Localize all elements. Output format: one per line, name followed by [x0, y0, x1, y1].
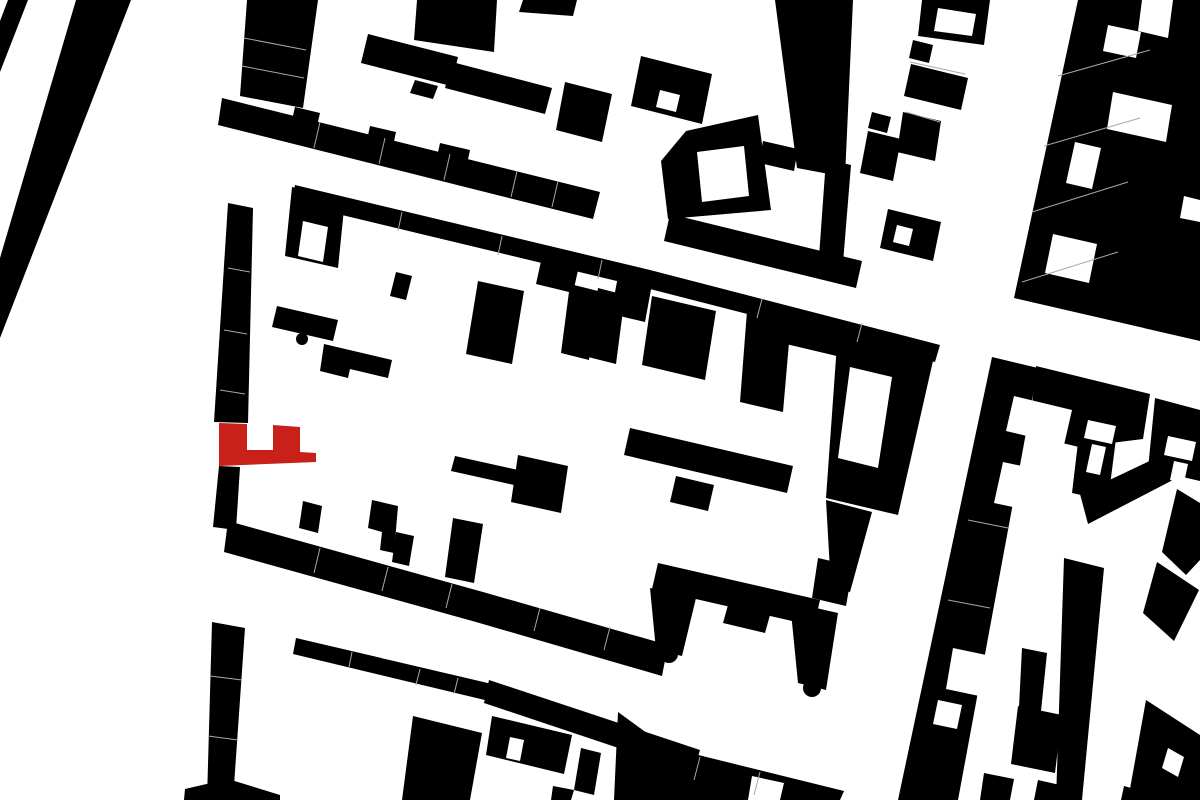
building-footprint: [642, 296, 716, 380]
highlighted-building: [219, 423, 316, 466]
building-footprint: [368, 500, 398, 553]
building-footprint: [574, 748, 601, 795]
building-footprint: [390, 272, 412, 300]
building-footprint: [0, 0, 28, 72]
building-footprint: [556, 82, 612, 142]
building-footprint: [410, 80, 438, 99]
building-footprint: [812, 558, 853, 606]
building-footprint: [670, 476, 714, 511]
building-footprint: [904, 64, 968, 110]
building-footprint: [819, 159, 851, 263]
courtyard: [697, 146, 749, 202]
building-footprint: [624, 428, 793, 493]
building-footprint: [299, 501, 322, 533]
building-footprint: [224, 521, 668, 676]
building-footprint: [214, 203, 253, 423]
building-footprint: [790, 602, 838, 690]
building-footprint: [868, 112, 891, 133]
building-footprint: [320, 344, 392, 378]
building-apse: [296, 333, 308, 345]
map-canvas: [0, 0, 1200, 800]
building-footprint: [1162, 489, 1200, 575]
building-footprint: [451, 456, 518, 485]
building-footprint: [980, 773, 1014, 800]
courtyard: [933, 700, 962, 729]
courtyard: [298, 221, 328, 262]
building-footprint: [740, 298, 792, 412]
building-footprint: [1128, 700, 1200, 800]
building-footprint: [218, 98, 600, 219]
building-footprint: [445, 518, 483, 583]
building-footprint: [213, 466, 240, 530]
building-footprint: [614, 712, 844, 800]
building-footprint: [1034, 780, 1060, 800]
building-footprint: [897, 112, 941, 161]
building-footprint: [207, 622, 245, 800]
building-footprint: [402, 716, 482, 800]
figure-ground-map: [0, 0, 1200, 800]
building-footprint: [1143, 562, 1199, 641]
building-footprint: [0, 0, 131, 338]
building-footprint: [240, 0, 318, 108]
building-footprint: [631, 56, 712, 124]
building-footprint: [551, 786, 574, 800]
building-apse: [803, 679, 821, 697]
building-footprint: [519, 0, 577, 16]
building-footprint: [414, 0, 497, 52]
building-footprint: [1056, 558, 1104, 800]
building-footprint: [184, 779, 280, 800]
building-footprint: [860, 131, 901, 181]
building-footprint: [511, 455, 568, 513]
building-footprint: [293, 638, 492, 701]
building-footprint: [445, 62, 552, 114]
building-footprint: [909, 40, 933, 63]
building-footprint: [1019, 648, 1047, 711]
building-apse: [660, 645, 678, 663]
building-footprint: [1011, 706, 1062, 773]
building-footprint: [466, 281, 524, 364]
